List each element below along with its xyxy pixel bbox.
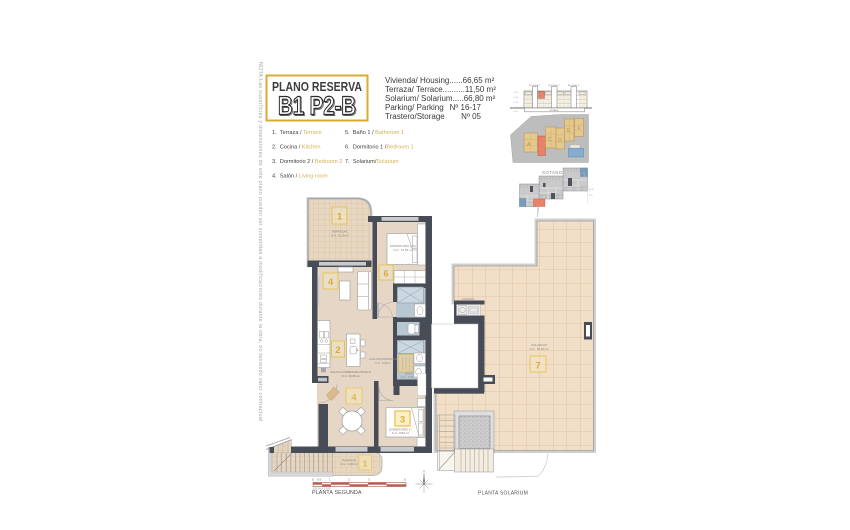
svg-text:LAVADERO: LAVADERO — [462, 298, 475, 301]
svg-text:3. Dormitorio 2 / Bedroom 2: 3. Dormitorio 2 / Bedroom 2 — [272, 159, 342, 165]
svg-text:4: 4 — [328, 277, 334, 288]
svg-text:Solarium/ Solarium.....66,80 m: Solarium/ Solarium.....66,80 m² — [385, 94, 496, 103]
svg-text:1. Terraza / Terrace: 1. Terraza / Terrace — [272, 130, 322, 136]
svg-text:5. Baño 1 / Bathroom 1: 5. Baño 1 / Bathroom 1 — [345, 130, 404, 136]
svg-text:7. Solarium/Solarium: 7. Solarium/Solarium — [345, 159, 399, 165]
svg-text:+9.45: +9.45 — [513, 92, 519, 94]
svg-text:4: 4 — [351, 393, 357, 404]
svg-text:7: 7 — [535, 361, 540, 372]
svg-text:B1 P2-B: B1 P2-B — [278, 91, 356, 121]
svg-text:Nº 05: Nº 05 — [461, 112, 481, 121]
svg-text:Vivienda/ Housing......66,65 m: Vivienda/ Housing......66,65 m² — [385, 76, 495, 85]
svg-text:BLOQUE 2: BLOQUE 2 — [549, 85, 561, 87]
svg-text:Nº 16-17: Nº 16-17 — [450, 103, 482, 112]
svg-text:3: 3 — [400, 415, 405, 426]
svg-text:F: F — [578, 126, 581, 132]
svg-text:S.U.: 66,80 m²: S.U.: 66,80 m² — [529, 347, 548, 351]
svg-text:S.U.: 3,30 m²: S.U.: 3,30 m² — [340, 462, 357, 466]
svg-text:Trastero/Storage: Trastero/Storage — [385, 112, 445, 121]
svg-text:+3.15: +3.15 — [513, 102, 519, 104]
svg-text:2. Cocina / Kitchen: 2. Cocina / Kitchen — [272, 145, 321, 151]
svg-text:BLOQUE 3: BLOQUE 3 — [568, 85, 580, 87]
svg-text:PLANTA SEGUNDA: PLANTA SEGUNDA — [312, 490, 362, 496]
svg-text:Parking/ Parking: Parking/ Parking — [385, 103, 444, 112]
svg-text:S.U.: 8,20 m²: S.U.: 8,20 m² — [331, 234, 349, 238]
svg-text:2: 2 — [335, 345, 340, 356]
svg-text:PLANTA SOLARIUM: PLANTA SOLARIUM — [478, 491, 528, 497]
svg-text:Terraza/ Terrace..........11,5: Terraza/ Terrace..........11,50 m² — [385, 85, 496, 94]
svg-text:6: 6 — [383, 269, 388, 279]
svg-text:S.U.: 3,66 m²: S.U.: 3,66 m² — [401, 375, 418, 379]
svg-text:0.5: 0.5 — [317, 478, 322, 482]
svg-text:S.U.: 10,85 m²: S.U.: 10,85 m² — [393, 248, 412, 252]
svg-text:1: 1 — [363, 459, 368, 469]
svg-text:6. Dormitorio 1 /Bedroom 1: 6. Dormitorio 1 /Bedroom 1 — [345, 145, 414, 151]
svg-text:12.40: 12.40 — [589, 189, 594, 191]
svg-text:NOTA:Las superficies y dimensi: NOTA:Las superficies y dimensiones de es… — [257, 62, 263, 422]
svg-text:S.U.: 8,50 m²: S.U.: 8,50 m² — [392, 431, 409, 435]
svg-text:SÓTANO: SÓTANO — [549, 109, 558, 112]
svg-text:C: C — [548, 137, 552, 143]
svg-text:1: 1 — [337, 212, 343, 223]
svg-text:4. Salón / Living room: 4. Salón / Living room — [272, 174, 328, 180]
svg-text:+0.00: +0.00 — [513, 107, 519, 109]
svg-text:8.25: 8.25 — [589, 195, 593, 197]
svg-text:+6.30: +6.30 — [513, 97, 519, 99]
svg-text:D: D — [558, 138, 562, 144]
svg-text:S.U.:16,86 m²: S.U.:16,86 m² — [342, 374, 361, 378]
svg-text:BLOQUE 1: BLOQUE 1 — [530, 85, 542, 87]
svg-text:S.U.: 3,52m²: S.U.: 3,52m² — [375, 361, 391, 365]
svg-text:SÓTANO: SÓTANO — [542, 170, 563, 175]
